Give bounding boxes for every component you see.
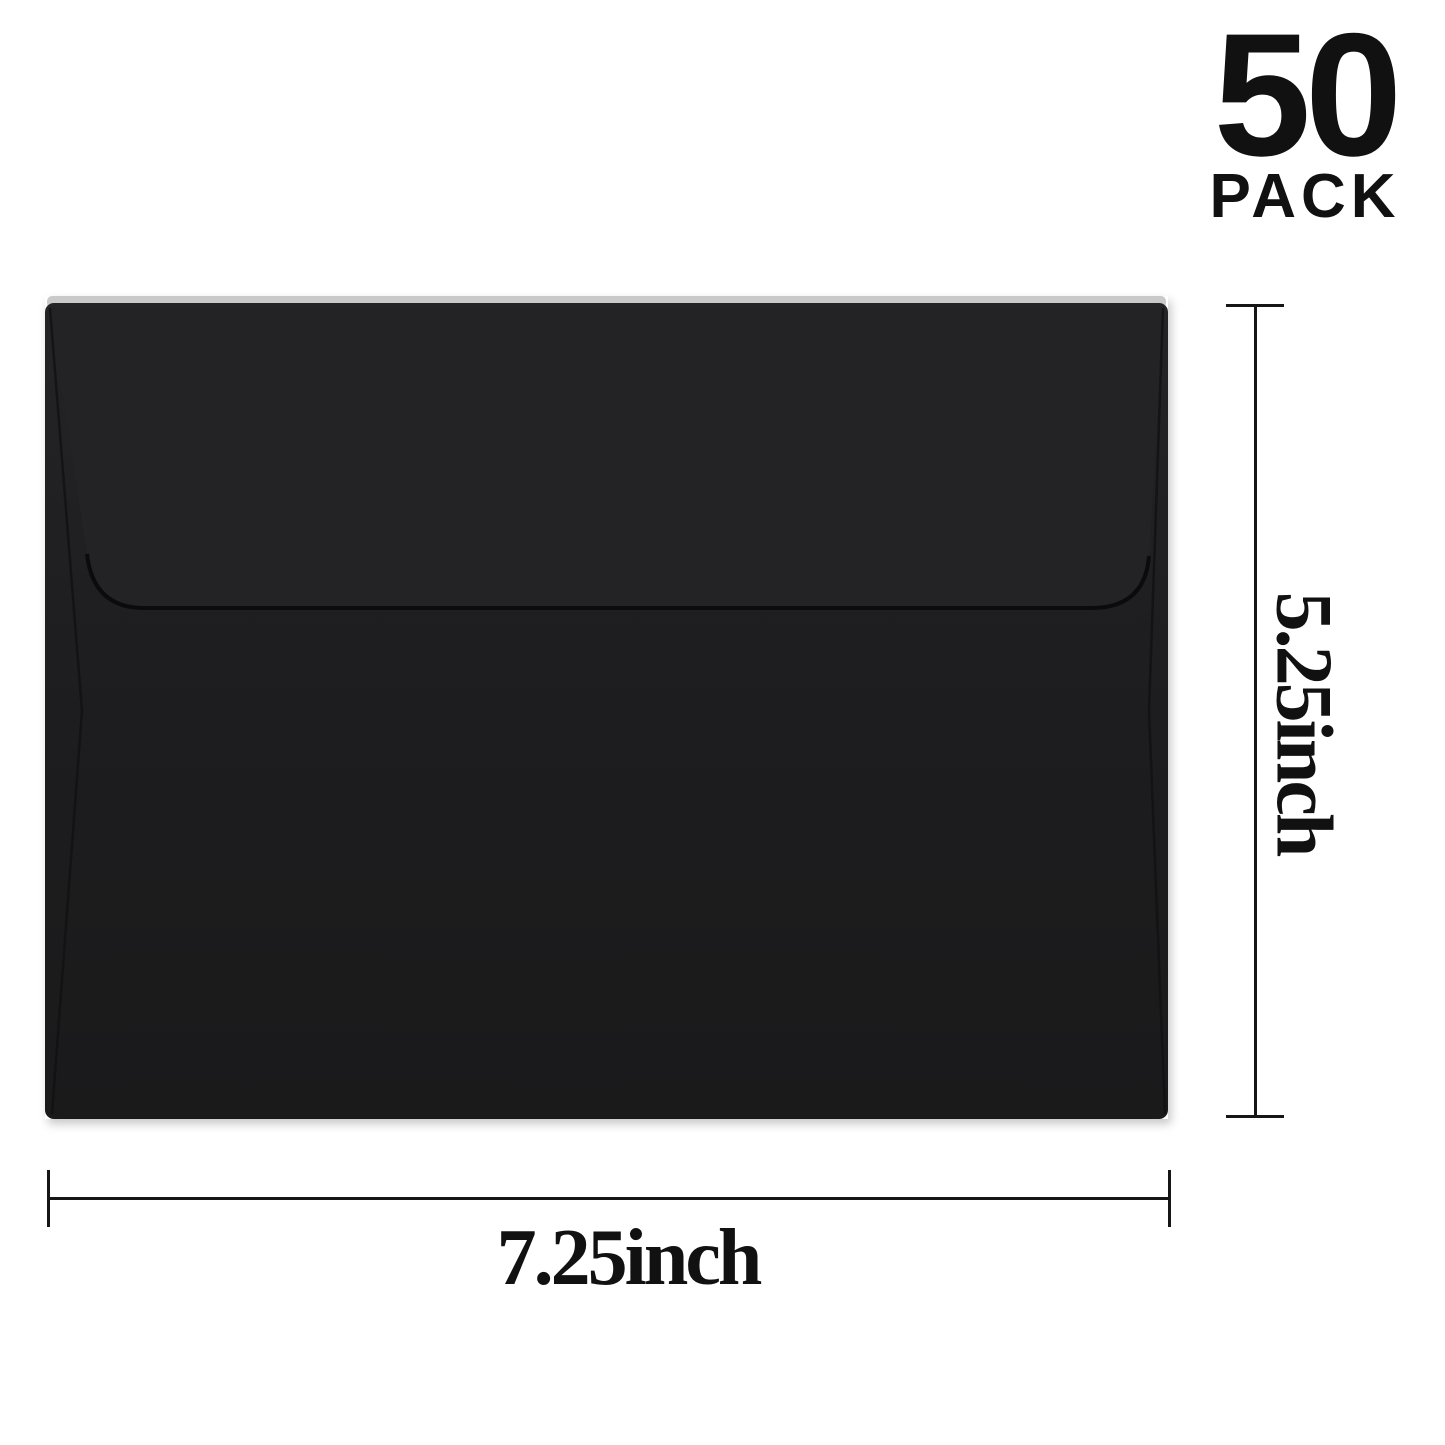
height-dimension-label: 5.25inch [1258,592,1349,855]
product-image-canvas: 50 PACK 5.25inch 7.25inch [0,0,1445,1445]
height-dimension-cap-top [1226,304,1284,307]
height-dimension-cap-bottom [1226,1115,1284,1118]
width-dimension-cap-left [47,1170,50,1227]
width-dimension-cap-right [1168,1170,1171,1227]
pack-badge: 50 PACK [1205,21,1405,228]
pack-unit: PACK [1205,166,1405,228]
width-dimension-label: 7.25inch [497,1213,760,1304]
envelope-flap [49,306,1164,608]
pack-count: 50 [1205,21,1405,171]
envelope-image [45,296,1168,1119]
width-dimension-line [48,1197,1171,1200]
